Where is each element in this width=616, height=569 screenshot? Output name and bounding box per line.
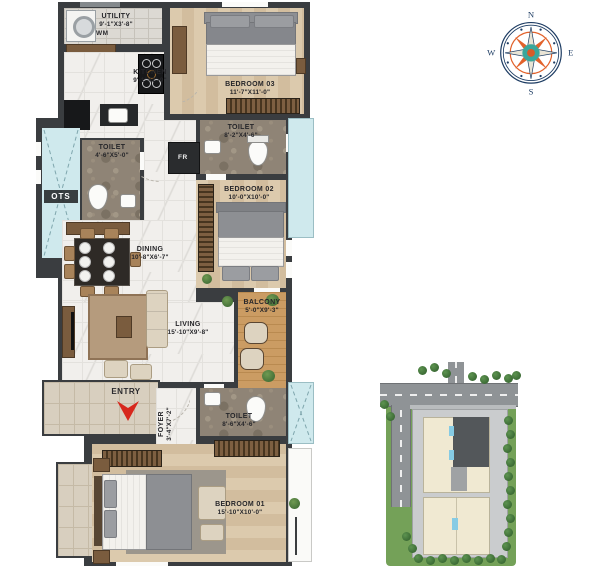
bedroom1-wardrobe-2: [214, 440, 280, 457]
bedroom2-window-2: [286, 262, 292, 278]
tree-icon: [430, 363, 439, 372]
tree-icon: [497, 555, 506, 564]
tv: [71, 312, 74, 350]
tree-icon: [380, 400, 389, 409]
entry-arrow-icon: [116, 400, 140, 422]
tree-icon: [492, 371, 501, 380]
site-plan: [378, 360, 518, 568]
tree-icon: [503, 500, 512, 509]
dining-chair: [80, 228, 95, 239]
wm-label: WM: [96, 31, 109, 38]
tree-icon: [486, 554, 495, 563]
tree-icon: [506, 430, 515, 439]
tree-icon: [418, 366, 427, 375]
balcony-label: BALCONY5'-0"X9'-3": [240, 298, 284, 316]
fridge: FR: [168, 142, 200, 174]
bedroom2-window-1: [286, 240, 292, 256]
tree-icon: [474, 556, 483, 565]
utility-vent: [80, 2, 120, 7]
ots-window-1: [36, 142, 41, 156]
coffee-table: [116, 316, 132, 338]
entry-label: ENTRY: [96, 388, 156, 396]
compass-e: E: [568, 47, 573, 57]
tree-icon: [506, 514, 515, 523]
compass-n: N: [528, 9, 535, 19]
tree-icon: [450, 556, 459, 565]
compass-w: W: [487, 47, 496, 57]
tree-icon: [512, 371, 521, 380]
side-ledge: [288, 118, 314, 238]
bedroom3-label: BEDROOM 0311'-7"X11'-0": [200, 80, 300, 98]
dining-chair: [64, 246, 75, 261]
dining-chair: [64, 264, 75, 279]
kitchen-counter: [64, 100, 90, 130]
tree-icon: [506, 486, 515, 495]
tree-icon: [386, 412, 395, 421]
tree-icon: [504, 416, 513, 425]
tree-icon: [426, 556, 435, 565]
tree-icon: [438, 554, 447, 563]
tree-icon: [468, 372, 477, 381]
tree-icon: [402, 532, 411, 541]
bedroom1-wardrobe-1: [102, 450, 162, 467]
fridge-label: FR: [178, 155, 188, 162]
sofa: [146, 290, 168, 348]
toilet-common-label: TOILET4'-6"X5'-0": [80, 143, 144, 161]
balcony-plant-2: [262, 370, 275, 382]
side-porch-strip: [56, 462, 96, 558]
duct-shaft: [288, 382, 314, 444]
toilet-b3-label: TOILET8'-2"X4'-6": [206, 123, 276, 141]
dining-label: DINING10'-8"X6'-7": [120, 245, 180, 263]
tree-icon: [503, 444, 512, 453]
kitchen-label: KITCHEN9'-1"X7'-9": [112, 68, 188, 86]
armchair: [130, 364, 152, 380]
tree-icon: [414, 554, 423, 563]
tree-icon: [408, 544, 417, 553]
living-plant: [222, 296, 233, 307]
ots-label: OTS: [44, 190, 78, 203]
floor-plan-sheet: FR OTS: [0, 0, 616, 569]
tree-icon: [504, 472, 513, 481]
living-label: LIVING15'-10"X9'-8": [152, 320, 224, 338]
bedroom2-label: BEDROOM 0210'-0"X10'-0": [212, 185, 286, 203]
tree-icon: [480, 375, 489, 384]
bedroom2-plant: [202, 274, 212, 284]
toilet-b3-sink: [204, 140, 221, 154]
toilet-b1-label: TOILET8'-6"X4'-6": [204, 412, 274, 430]
bedroom1-ottoman: [200, 524, 224, 541]
ledge-plant: [289, 498, 300, 509]
bedroom1-label: BEDROOM 0115'-10"X10'-0": [198, 500, 282, 518]
armchair: [104, 360, 128, 378]
bedroom3-stool: [296, 58, 306, 74]
kitchen-sink-counter: [100, 104, 138, 126]
toilet-b1-sink: [204, 392, 221, 406]
tree-icon: [462, 554, 471, 563]
dining-chair: [104, 228, 119, 239]
site-trees: [378, 360, 518, 568]
toilet-b1-door: [204, 384, 224, 388]
compass-rose: N E S W: [486, 4, 576, 100]
bedroom1-nightstand-2: [93, 550, 110, 564]
bedroom3-dresser: [172, 26, 187, 74]
tree-icon: [504, 528, 513, 537]
tree-icon: [506, 458, 515, 467]
tree-icon: [502, 542, 511, 551]
ots-window-2: [36, 170, 41, 184]
bedroom1-window: [116, 562, 168, 566]
compass-s: S: [529, 86, 534, 96]
toilet-common-sink: [120, 194, 136, 208]
balcony-chair-2: [240, 348, 264, 370]
bedroom3-wardrobe: [226, 98, 300, 114]
bedroom1-nightstand-1: [93, 458, 110, 472]
utility-label: UTILITY9'-1"X3'-8": [84, 12, 148, 30]
tree-icon: [442, 369, 451, 378]
balcony-chair-1: [244, 322, 268, 344]
dining-sideboard: [66, 222, 130, 235]
bedroom3-window: [222, 2, 268, 7]
